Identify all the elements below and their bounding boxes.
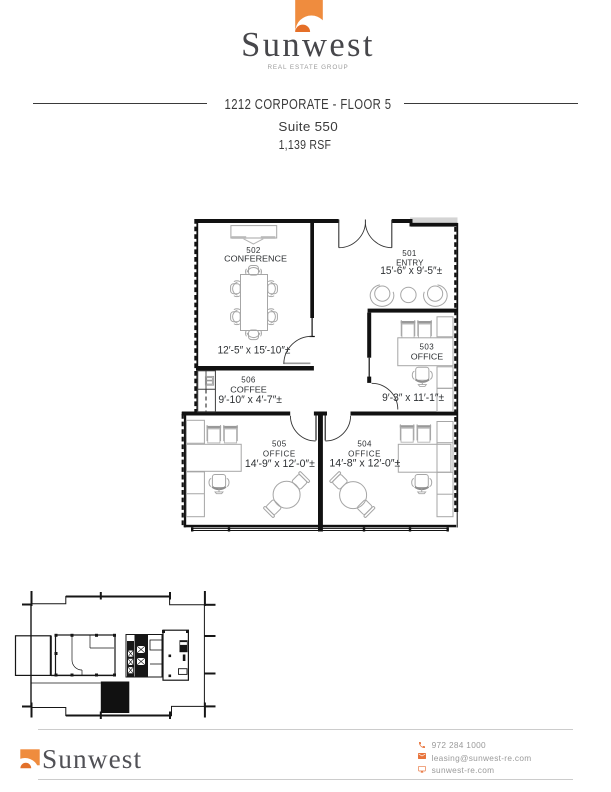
svg-text:505: 505 (272, 440, 287, 449)
svg-text:9′-10″ x 4′-7″±: 9′-10″ x 4′-7″± (218, 394, 282, 406)
svg-text:OFFICE: OFFICE (411, 352, 443, 361)
svg-text:504: 504 (357, 440, 372, 449)
svg-text:CONFERENCE: CONFERENCE (224, 254, 287, 263)
svg-text:14′-8″ x 12′-0″±: 14′-8″ x 12′-0″± (329, 457, 400, 469)
svg-text:503: 503 (420, 343, 435, 352)
svg-text:15′-6″ x 9′-5″±: 15′-6″ x 9′-5″± (380, 265, 442, 277)
svg-text:12′-5″ x 15′-10″±: 12′-5″ x 15′-10″± (218, 344, 291, 356)
svg-text:501: 501 (402, 249, 417, 258)
svg-text:14′-9″ x 12′-0″±: 14′-9″ x 12′-0″± (245, 458, 315, 470)
svg-text:9′-3″ x 11′-1″±: 9′-3″ x 11′-1″± (382, 392, 444, 404)
svg-text:506: 506 (241, 375, 256, 384)
